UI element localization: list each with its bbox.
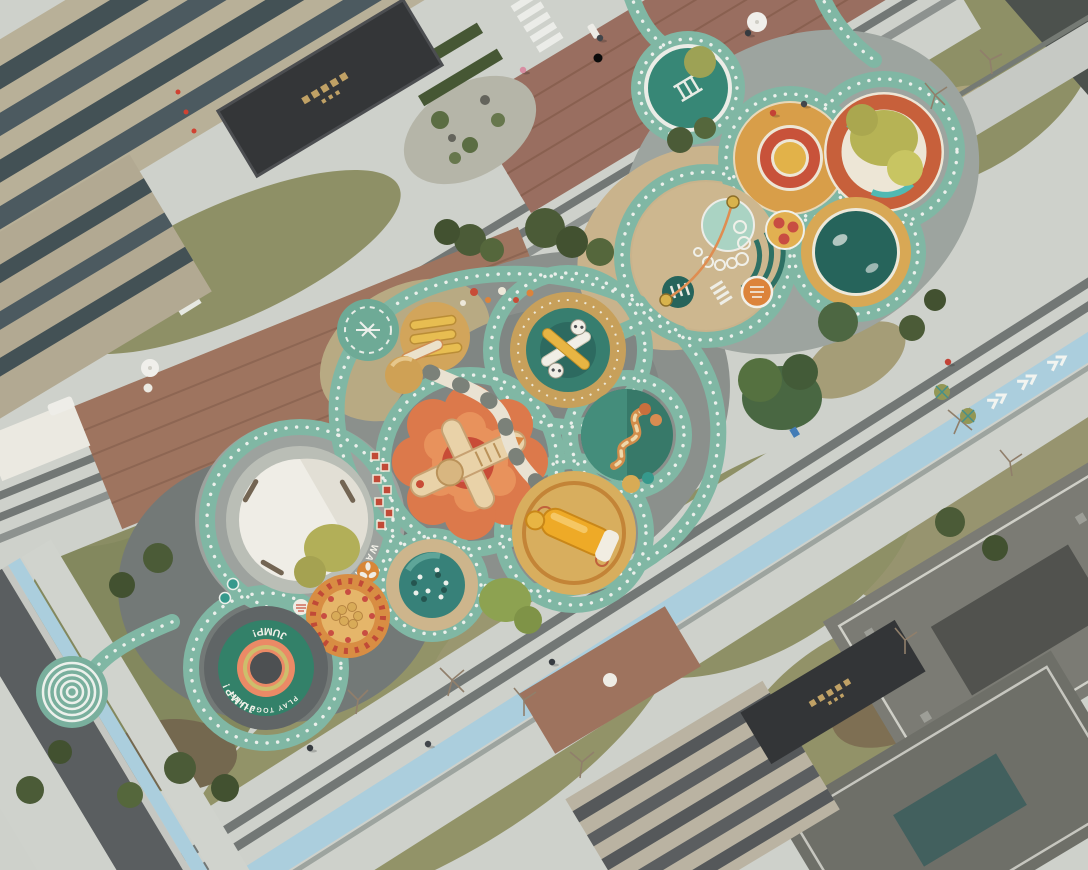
aerial-playground-photo: WAY TO FUN!: [0, 0, 1088, 870]
scene: WAY TO FUN!: [0, 0, 1088, 870]
haze-overlay: [0, 0, 1088, 870]
